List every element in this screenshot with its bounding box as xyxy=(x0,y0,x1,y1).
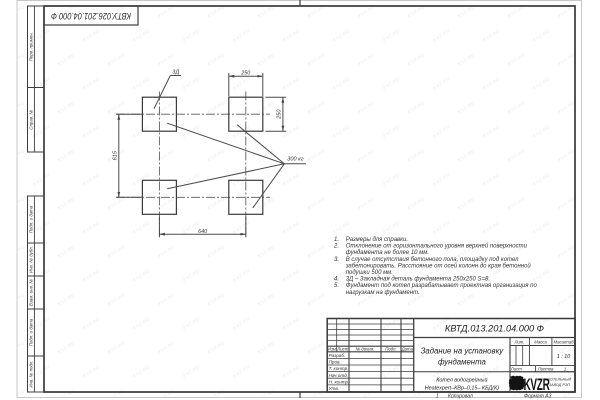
svg-text:4.: 4. xyxy=(334,277,339,283)
svg-text:фундамента: фундамента xyxy=(438,358,487,367)
svg-text:КОТЕЛЬНЫЙ: КОТЕЛЬНЫЙ xyxy=(548,378,572,382)
svg-text:Изм: Изм xyxy=(328,347,336,352)
svg-text:300 кг: 300 кг xyxy=(287,157,304,163)
svg-text:Задание на установку: Задание на установку xyxy=(421,347,505,356)
svg-text:3Д: 3Д xyxy=(172,69,179,75)
svg-text:615: 615 xyxy=(113,150,119,160)
svg-text:Листов: Листов xyxy=(537,367,554,372)
svg-text:Подп. и дата: Подп. и дата xyxy=(28,318,33,346)
svg-text:Справ. №: Справ. № xyxy=(28,109,33,129)
svg-text:2.: 2. xyxy=(333,244,339,250)
svg-text:250: 250 xyxy=(240,71,250,77)
svg-text:Нач.отд.: Нач.отд. xyxy=(329,373,348,378)
svg-text:1 : 10: 1 : 10 xyxy=(557,354,571,360)
svg-text:3.: 3. xyxy=(334,257,339,263)
svg-text:Формат А3: Формат А3 xyxy=(524,393,552,399)
svg-text:забетонировать. Расстояние от: забетонировать. Расстояние от осей колон… xyxy=(345,262,532,269)
svg-text:В случае отсутствия бетонного: В случае отсутствия бетонного пола, площ… xyxy=(346,257,519,263)
svg-text:Инв. № дубл.: Инв. № дубл. xyxy=(28,246,33,273)
svg-text:1: 1 xyxy=(564,367,567,372)
svg-text:Разраб.: Разраб. xyxy=(329,353,346,358)
svg-text:Т. контр.: Т. контр. xyxy=(329,366,349,371)
svg-text:КВТД.013.201.04.000 Ф: КВТД.013.201.04.000 Ф xyxy=(445,324,544,334)
svg-text:Дата: Дата xyxy=(401,347,414,352)
svg-text:Подп. и дата: Подп. и дата xyxy=(28,205,33,233)
svg-text:Н. контр.: Н. контр. xyxy=(329,379,350,384)
svg-text:Лист: Лист xyxy=(510,367,522,372)
svg-text:640: 640 xyxy=(198,229,207,235)
svg-text:Отклонение от горизонтального: Отклонение от горизонтального уровня вер… xyxy=(346,243,528,250)
svg-text:5.: 5. xyxy=(334,283,339,289)
svg-text:Котел водогрейный: Котел водогрейный xyxy=(436,376,487,383)
svg-text:Лист: Лист xyxy=(336,347,348,352)
svg-text:нагрузкам на фундамент.: нагрузкам на фундамент. xyxy=(346,290,420,296)
svg-text:Инв. № подл.: Инв. № подл. xyxy=(28,360,33,387)
svg-text:1.: 1. xyxy=(334,237,339,243)
svg-text:№ докум.: № докум. xyxy=(356,347,375,352)
svg-text:Пров.: Пров. xyxy=(329,360,341,365)
svg-text:КВТУ.026.201.04.000 Ф: КВТУ.026.201.04.000 Ф xyxy=(51,11,131,21)
svg-text:Взам. инв. №: Взам. инв. № xyxy=(28,279,33,306)
svg-text:Масштаб: Масштаб xyxy=(553,339,574,344)
svg-text:Лит.: Лит. xyxy=(513,339,524,344)
svg-text:Копировал: Копировал xyxy=(448,393,473,399)
svg-text:Перв. примен.: Перв. примен. xyxy=(28,32,33,61)
svg-text:подушки 500 мм.: подушки 500 мм. xyxy=(346,270,393,276)
svg-text:Фундамент под котел разрабатыв: Фундамент под котел разрабатывает проект… xyxy=(346,283,538,289)
svg-text:KVZR: KVZR xyxy=(524,376,550,394)
svg-text:250: 250 xyxy=(277,109,283,120)
svg-text:Масса: Масса xyxy=(534,339,547,344)
svg-text:ЗАВОД РЭП: ЗАВОД РЭП xyxy=(549,383,570,387)
svg-text:Размеры для справки.: Размеры для справки. xyxy=(346,237,408,243)
svg-text:Heatexpert–КВр–0,15– КБД(К): Heatexpert–КВр–0,15– КБД(К) xyxy=(425,385,499,391)
svg-text:фундамента не более 10 мм.: фундамента не более 10 мм. xyxy=(346,250,429,256)
svg-text:Подп.: Подп. xyxy=(385,347,396,352)
svg-text:Утв.: Утв. xyxy=(329,386,339,391)
svg-text:1: 1 xyxy=(436,393,439,399)
svg-text:3Д – Закладная деталь фундамен: 3Д – Закладная деталь фундамента 250х250… xyxy=(346,277,490,283)
